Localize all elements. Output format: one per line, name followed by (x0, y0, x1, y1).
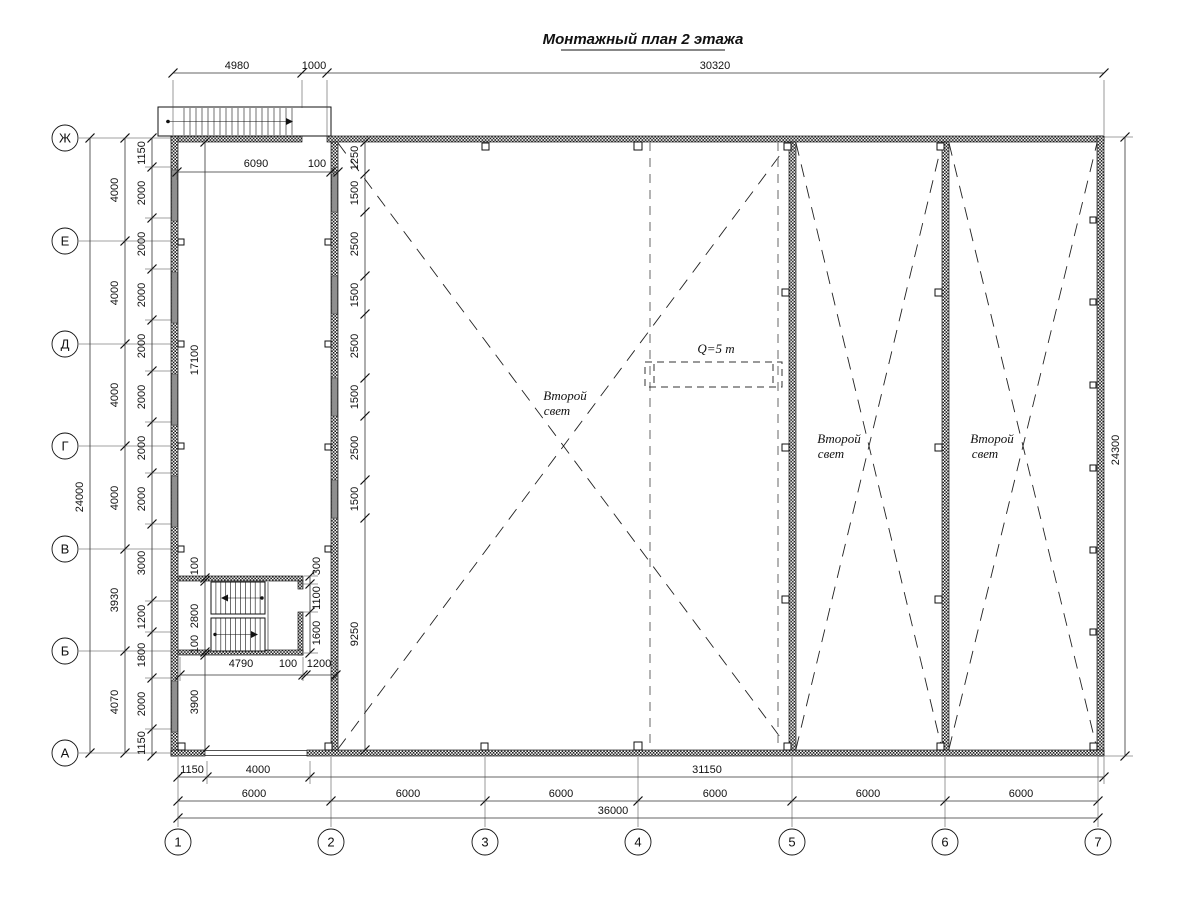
column-marker (935, 596, 942, 603)
axis-row-label: Б (61, 644, 70, 659)
crane-bridge (645, 362, 782, 387)
dimension-label: 4070 (109, 690, 121, 714)
dimension-label: 2500 (349, 232, 361, 256)
wall-axis-6 (942, 142, 949, 750)
dimension-label: 2000 (136, 232, 148, 256)
column-marker (784, 143, 791, 150)
dimension-label: 6000 (549, 788, 573, 800)
stair-start-dot (166, 120, 170, 124)
dimension-label: 1150 (136, 141, 148, 165)
plan-annotation: свет (818, 446, 844, 461)
column-marker (782, 444, 789, 451)
dimension-label: 300 (311, 557, 323, 575)
column-marker (1090, 629, 1096, 635)
bottom-wall-left (171, 750, 205, 756)
crane-zone (645, 142, 782, 750)
column-marker (1090, 382, 1096, 388)
dimension-label: 24000 (74, 482, 86, 513)
axis-col-label: 2 (327, 835, 334, 850)
dimension-label: 2000 (136, 385, 148, 409)
window-segment (332, 174, 338, 212)
column-marker (325, 546, 331, 552)
dimension-label: 6090 (244, 158, 268, 170)
axis-row-label: Д (61, 337, 70, 352)
column-marker (1090, 217, 1096, 223)
dimension-label: 100 (189, 557, 201, 575)
wall-axis-2 (331, 142, 338, 750)
column-marker (178, 341, 184, 347)
window-segment (172, 272, 178, 323)
dimension-label: 9250 (349, 622, 361, 646)
page-title: Монтажный план 2 этажа (543, 31, 744, 48)
stair-start-dot (213, 633, 216, 636)
bottom-wall-right (307, 750, 1104, 756)
dimension-label: 1600 (311, 621, 323, 645)
dimension-label: 1500 (349, 283, 361, 307)
dimension-label: 4790 (229, 658, 253, 670)
column-marker (178, 743, 185, 750)
axis-col-label: 7 (1094, 835, 1101, 850)
stairwell-top-wall (178, 576, 303, 581)
dimension-label: 2000 (136, 283, 148, 307)
dimension-label: 100 (308, 158, 326, 170)
column-marker (634, 742, 642, 750)
left-wall (171, 136, 178, 756)
dimension-label: 1500 (349, 181, 361, 205)
plan-annotation: свет (972, 446, 998, 461)
dimension-label: 6000 (703, 788, 727, 800)
plan-annotation: Второй (817, 431, 861, 446)
dimension-label: 1250 (349, 146, 361, 170)
axis-row-label: Е (61, 234, 70, 249)
axis-row-label: В (61, 542, 70, 557)
column-marker (481, 743, 488, 750)
stairwell-right-wall (298, 612, 303, 655)
axis-row-label: Г (61, 439, 68, 454)
window-segment (332, 276, 338, 314)
dimension-label: 100 (189, 635, 201, 653)
plan-annotation: свет (544, 403, 570, 418)
exterior-stair (158, 107, 331, 136)
column-marker (782, 596, 789, 603)
generated-text: ЖЕДГВБА123456749801000303206090100240004… (52, 60, 1122, 855)
dimension-label: 2000 (136, 181, 148, 205)
column-marker (935, 444, 942, 451)
dimension-label: 6000 (1009, 788, 1033, 800)
window-segment (172, 476, 178, 527)
window-segment (172, 374, 178, 425)
column-marker (937, 143, 944, 150)
dimension-label: 4000 (109, 486, 121, 510)
drawing-title: Монтажный план 2 этажа (543, 31, 744, 50)
dimension-label: 100 (279, 658, 297, 670)
dimension-label: 36000 (598, 805, 629, 817)
dimension-label: 2000 (136, 692, 148, 716)
column-marker (1090, 299, 1096, 305)
column-marker (1090, 465, 1096, 471)
column-marker (482, 143, 489, 150)
window-segment (332, 378, 338, 416)
dimension-label: 4000 (109, 281, 121, 305)
plan-annotation: Q=5 т (697, 341, 734, 356)
wall-axis-5 (789, 142, 796, 750)
column-marker (1090, 743, 1097, 750)
column-marker (784, 743, 791, 750)
window-segment (172, 170, 178, 221)
dimension-label: 1150 (180, 764, 204, 776)
plan-annotation: Второй (970, 431, 1014, 446)
dimension-label: 1800 (136, 643, 148, 667)
column-marker (178, 546, 184, 552)
axis-row-label: Ж (59, 131, 71, 146)
dimension-label: 1500 (349, 385, 361, 409)
dimension-label: 24300 (1110, 435, 1122, 466)
axis-row-label: А (61, 746, 70, 761)
axis-col-label: 5 (788, 835, 795, 850)
column-marker (325, 444, 331, 450)
top-wall-left (171, 136, 302, 142)
stairwell-wall-stub (298, 581, 303, 589)
dimension-label: 1000 (302, 60, 326, 72)
plan-annotation: Второй (543, 388, 587, 403)
dimension-label: 3000 (136, 551, 148, 575)
column-marker (937, 743, 944, 750)
stair-start-dot (260, 596, 263, 599)
dimension-label: 6000 (242, 788, 266, 800)
column-marker (178, 239, 184, 245)
dimension-label: 30320 (700, 60, 731, 72)
window-segment (332, 480, 338, 518)
dimension-label: 1100 (311, 586, 323, 610)
dimension-label: 31150 (692, 764, 722, 776)
axis-col-label: 6 (941, 835, 948, 850)
dimension-label: 2000 (136, 487, 148, 511)
axis-col-label: 4 (634, 835, 641, 850)
axis-col-label: 1 (174, 835, 181, 850)
column-marker (178, 443, 184, 449)
dimension-label: 2000 (136, 436, 148, 460)
dimension-label: 1200 (136, 605, 148, 629)
window-segment (172, 681, 178, 732)
dimension-label: 1200 (307, 658, 331, 670)
dimension-label: 4000 (109, 178, 121, 202)
right-wall (1097, 136, 1104, 756)
dimension-label: 2000 (136, 334, 148, 358)
dimension-label: 2500 (349, 334, 361, 358)
column-marker (782, 289, 789, 296)
dimension-label: 1500 (349, 487, 361, 511)
column-marker (325, 341, 331, 347)
dimension-label: 1150 (136, 731, 148, 755)
dimension-label: 17100 (189, 345, 201, 376)
column-marker (325, 743, 332, 750)
dimension-label: 3900 (189, 690, 201, 714)
dimension-label: 2500 (349, 436, 361, 460)
interior-stair (211, 582, 268, 651)
column-marker (1090, 547, 1096, 553)
dimension-label: 6000 (856, 788, 880, 800)
column-marker (634, 142, 642, 150)
column-marker (325, 239, 331, 245)
axis-col-label: 3 (481, 835, 488, 850)
dimension-label: 4000 (109, 383, 121, 407)
dimension-label: 6000 (396, 788, 420, 800)
dimension-label: 4000 (246, 764, 270, 776)
dimension-label: 4980 (225, 60, 249, 72)
column-marker (935, 289, 942, 296)
floor-plan-canvas: Монтажный план 2 этажа (0, 0, 1200, 900)
drawing-sheet: Монтажный план 2 этажа (0, 0, 1200, 900)
dimension-label: 3930 (109, 588, 121, 612)
dimension-label: 2800 (189, 604, 201, 628)
top-wall-right (327, 136, 1104, 142)
